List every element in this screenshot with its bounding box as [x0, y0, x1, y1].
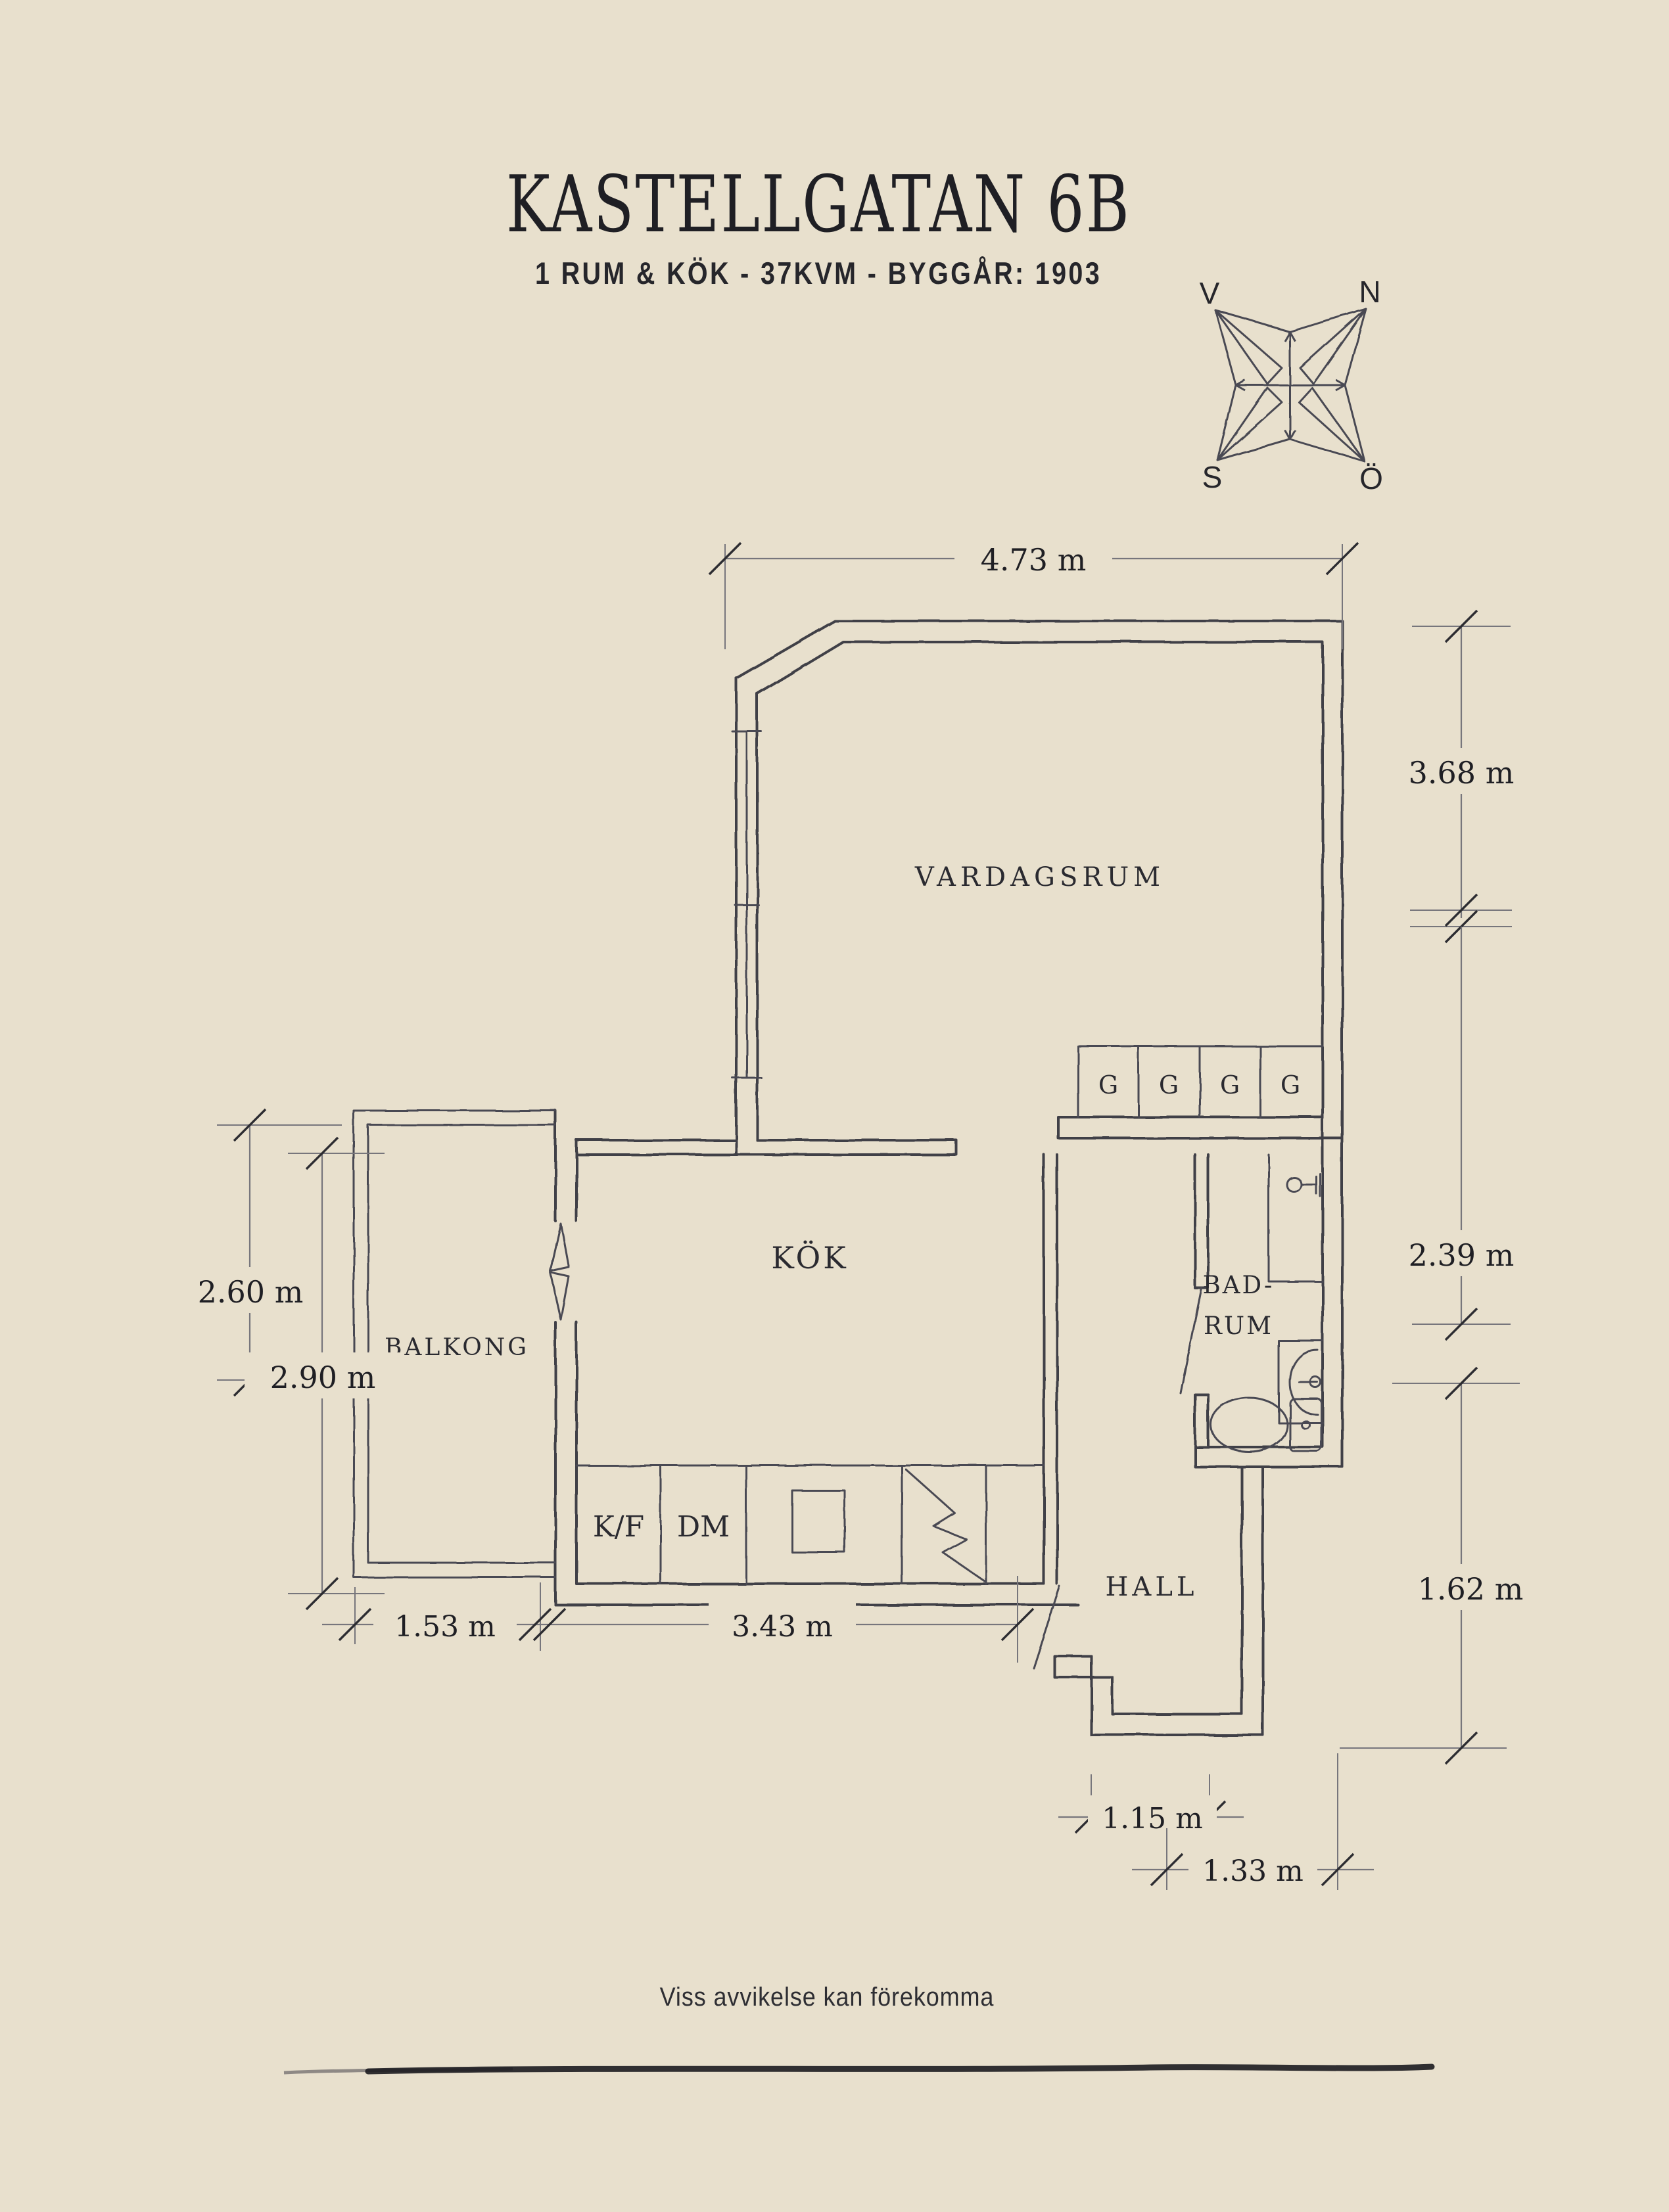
closet-label-2: G	[1159, 1071, 1179, 1099]
page-title: KASTELLGATAN 6B	[506, 158, 1131, 250]
compass-star-icon	[1215, 309, 1366, 461]
header: KASTELLGATAN 6B 1 RUM & KÖK - 37KVM - BY…	[506, 158, 1131, 290]
compass-east-label: Ö	[1359, 461, 1383, 495]
page-subtitle: 1 RUM & KÖK - 37KVM - BYGGÅR: 1903	[535, 257, 1102, 291]
svg-text:1.62 m: 1.62 m	[1418, 1571, 1524, 1607]
hand-drawn-divider	[284, 2067, 1432, 2073]
stove-icon	[906, 1469, 985, 1581]
hall-label: HALL	[1106, 1572, 1198, 1602]
dimension-left-inner: 2.90 m	[245, 1138, 401, 1609]
svg-text:1.33 m: 1.33 m	[1202, 1855, 1304, 1888]
bathroom-label-line2: RUM	[1204, 1312, 1273, 1340]
disclaimer-text: Viss avvikelse kan förekomma	[660, 1983, 995, 2012]
kitchen-label: KÖK	[771, 1239, 848, 1276]
living-room-label: VARDAGSRUM	[914, 862, 1165, 892]
dimension-right-upper: 3.68 m	[1382, 611, 1540, 942]
kitchen-counter	[576, 1465, 1044, 1584]
svg-text:3.68 m: 3.68 m	[1409, 755, 1515, 791]
closet-label-4: G	[1281, 1071, 1300, 1099]
kitchen-sink-icon	[792, 1490, 845, 1552]
svg-text:1.53 m: 1.53 m	[394, 1610, 496, 1644]
compass-north-label: N	[1359, 275, 1380, 309]
dimension-bottom-kitchen: 3.43 m	[732, 1610, 833, 1644]
compass-south-label: S	[1202, 460, 1223, 494]
toilet-icon	[1211, 1398, 1321, 1452]
shower-icon	[1269, 1155, 1323, 1281]
balcony-door-icon	[550, 1224, 569, 1320]
svg-text:2.90 m: 2.90 m	[270, 1360, 376, 1395]
svg-text:1.15 m: 1.15 m	[1102, 1802, 1203, 1835]
svg-text:2.39 m: 2.39 m	[1409, 1237, 1515, 1273]
sink-icon	[1279, 1341, 1323, 1423]
dimension-right-middle: 2.39 m	[1382, 927, 1540, 1340]
bathroom-door-icon	[1181, 1288, 1202, 1393]
fridge-freezer-label: K/F	[593, 1510, 644, 1544]
bathroom-label-line1: BAD-	[1203, 1271, 1275, 1299]
closet-label-3: G	[1220, 1071, 1240, 1099]
floorplan-page: KASTELLGATAN 6B 1 RUM & KÖK - 37KVM - BY…	[0, 0, 1669, 2212]
dishwasher-label: DM	[677, 1510, 730, 1544]
closet-label-1: G	[1098, 1071, 1118, 1099]
compass-west-label: V	[1200, 276, 1220, 310]
dimension-right-lower: 1.62 m	[1340, 1368, 1551, 1764]
walls	[354, 621, 1342, 1735]
dimension-bottom-balcony: 1.53 m 3.43 m	[322, 1576, 1033, 1663]
svg-text:4.73 m: 4.73 m	[981, 542, 1087, 578]
compass-rose: V N S Ö	[1200, 275, 1383, 495]
svg-text:2.60 m: 2.60 m	[198, 1274, 304, 1310]
dimension-annotations: 4.73 m 3.68 m 2.39 m 1.62 m	[172, 534, 1551, 1890]
balcony-label: BALKONG	[385, 1334, 529, 1361]
dimension-bottom-hall-inner: 1.15 m	[1058, 1774, 1244, 1837]
floorplan-canvas: KASTELLGATAN 6B 1 RUM & KÖK - 37KVM - BY…	[0, 0, 1669, 2212]
dimension-top-width: 4.73 m	[709, 534, 1358, 649]
